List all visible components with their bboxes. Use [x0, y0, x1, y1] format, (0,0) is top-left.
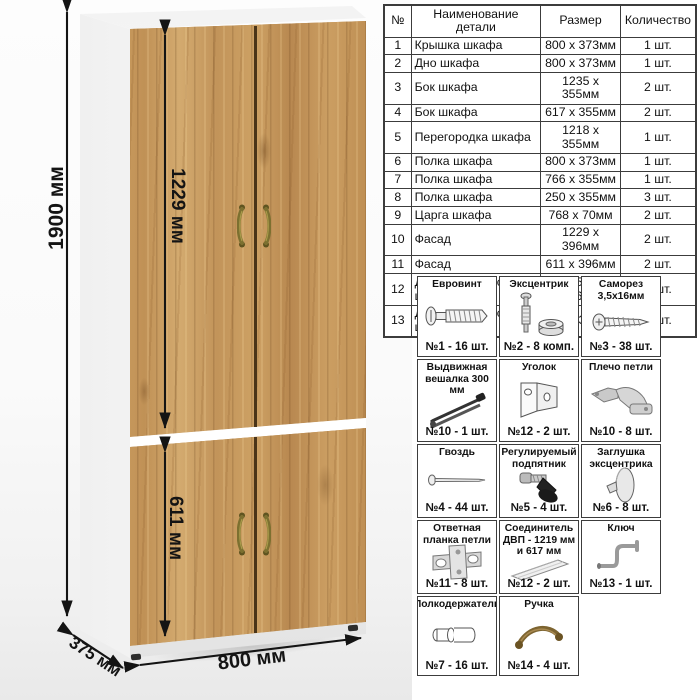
part-qty-cell: 2 шт.	[620, 207, 696, 225]
part-name-cell: Царга шкафа	[411, 207, 541, 225]
part-size-cell: 800 x 373мм	[541, 37, 621, 55]
corner-bracket-icon	[513, 374, 565, 426]
hardware-item: Уголок№12 - 2 шт.	[499, 359, 579, 442]
part-qty-cell: 2 шт.	[620, 224, 696, 256]
part-size-cell: 617 x 355мм	[541, 104, 621, 122]
hardware-item-name: Полкодержатель	[417, 599, 497, 611]
eccentric-cam-icon	[511, 291, 567, 341]
part-qty-cell: 2 шт.	[620, 104, 696, 122]
door-handle-left-icon	[237, 204, 247, 248]
upper-door-dimension-label: 1229 мм	[166, 168, 188, 244]
hardware-item: Ключ№13 - 1 шт.	[581, 520, 661, 594]
hardware-item-name: Уголок	[522, 362, 556, 374]
hardware-item: Регулируемый подпятник№5 - 4 шт.	[499, 444, 579, 518]
part-size-cell: 250 x 355мм	[541, 189, 621, 207]
table-row: 2Дно шкафа800 x 373мм1 шт.	[384, 55, 696, 73]
part-name-cell: Полка шкафа	[411, 171, 541, 189]
part-name-cell: Полка шкафа	[411, 153, 541, 171]
hardware-item: Ответная планка петли№11 - 8 шт.	[417, 520, 497, 594]
table-row: 1Крышка шкафа800 x 373мм1 шт.	[384, 37, 696, 55]
hardware-item: Эксцентрик№2 - 8 комп.	[499, 276, 579, 357]
part-name-cell: Полка шкафа	[411, 189, 541, 207]
cabinet-foot	[131, 654, 141, 661]
part-qty-cell: 1 шт.	[620, 122, 696, 154]
hardware-item-count: №12 - 2 шт.	[508, 426, 571, 438]
part-qty-cell: 1 шт.	[620, 37, 696, 55]
part-size-cell: 1218 x 355мм	[541, 122, 621, 154]
part-name-cell: Дно шкафа	[411, 55, 541, 73]
hardware-item-count: №10 - 8 шт.	[590, 426, 653, 438]
part-number-cell: 6	[384, 153, 411, 171]
hardware-item: Саморез 3,5х16мм№3 - 38 шт.	[581, 276, 661, 357]
part-size-cell: 611 x 396мм	[541, 256, 621, 274]
pullout-hanger-icon	[424, 397, 490, 426]
part-number-cell: 11	[384, 256, 411, 274]
hardware-item-count: №1 - 16 шт.	[426, 341, 489, 353]
hardware-item: Гвоздь№4 - 44 шт.	[417, 444, 497, 518]
handle-icon	[511, 611, 567, 660]
door-handle-right-icon	[261, 512, 271, 556]
part-size-cell: 800 x 373мм	[541, 153, 621, 171]
parts-table-header-row: №Наименование деталиРазмерКоличество	[384, 5, 696, 37]
hardware-item-count: №6 - 8 шт.	[593, 502, 649, 514]
hardware-item-name: Гвоздь	[439, 447, 475, 459]
hardware-item-count: №12 - 2 шт.	[508, 578, 571, 590]
part-name-cell: Фасад	[411, 256, 541, 274]
part-number-cell: 9	[384, 207, 411, 225]
hardware-item: Ручка№14 - 4 шт.	[499, 596, 579, 676]
part-qty-cell: 3 шт.	[620, 189, 696, 207]
part-name-cell: Фасад	[411, 224, 541, 256]
assembly-sheet: 1900 мм 1229 мм 611 мм 800 мм 375 мм №На…	[0, 0, 700, 700]
hardware-item-count: №10 - 1 шт.	[426, 426, 489, 438]
hardware-item: Евровинт№1 - 16 шт.	[417, 276, 497, 357]
part-number-cell: 8	[384, 189, 411, 207]
table-row: 6Полка шкафа800 x 373мм1 шт.	[384, 153, 696, 171]
part-qty-cell: 1 шт.	[620, 153, 696, 171]
hardware-item: Полкодержатель№7 - 16 шт.	[417, 596, 497, 676]
cam-cover-icon	[602, 470, 640, 502]
part-number-cell: 13	[384, 305, 411, 337]
hardware-item: Соединитель ДВП - 1219 мм и 617 мм№12 - …	[499, 520, 579, 594]
part-number-cell: 7	[384, 171, 411, 189]
table-row: 4Бок шкафа617 x 355мм2 шт.	[384, 104, 696, 122]
part-number-cell: 3	[384, 73, 411, 105]
cabinet-foot	[348, 625, 358, 632]
hardware-item: Выдвижная вешалка 300 мм№10 - 1 шт.	[417, 359, 497, 442]
hinge-arm-icon	[588, 374, 654, 426]
part-size-cell: 1229 x 396мм	[541, 224, 621, 256]
hardware-item-count: №5 - 4 шт.	[511, 502, 567, 514]
part-number-cell: 1	[384, 37, 411, 55]
parts-table-header: Количество	[620, 5, 696, 37]
part-qty-cell: 2 шт.	[620, 256, 696, 274]
hardware-item-count: №7 - 16 шт.	[426, 660, 489, 672]
lower-door-dimension-label: 611 мм	[164, 496, 186, 560]
table-row: 9Царга шкафа768 x 70мм2 шт.	[384, 207, 696, 225]
part-name-cell: Перегородка шкафа	[411, 122, 541, 154]
part-size-cell: 766 x 355мм	[541, 171, 621, 189]
door-handle-left-icon	[237, 512, 247, 556]
part-number-cell: 10	[384, 224, 411, 256]
height-dimension-label: 1900 мм	[45, 166, 69, 250]
part-number-cell: 5	[384, 122, 411, 154]
lower-door-gap	[254, 437, 257, 633]
hinge-plate-icon	[427, 546, 487, 578]
part-size-cell: 768 x 70мм	[541, 207, 621, 225]
euro-screw-icon	[425, 291, 489, 341]
table-row: 11Фасад611 x 396мм2 шт.	[384, 256, 696, 274]
table-row: 5Перегородка шкафа1218 x 355мм1 шт.	[384, 122, 696, 154]
hardware-item-count: №2 - 8 комп.	[504, 341, 574, 353]
shelf-pin-icon	[430, 611, 484, 660]
hardware-item-count: №11 - 8 шт.	[426, 578, 488, 590]
table-row: 3Бок шкафа1235 x 355мм2 шт.	[384, 73, 696, 105]
wardrobe	[80, 4, 372, 672]
hardware-item-count: №4 - 44 шт.	[426, 502, 489, 514]
part-size-cell: 1235 x 355мм	[541, 73, 621, 105]
hardware-item-name: Евровинт	[432, 279, 482, 291]
part-name-cell: Бок шкафа	[411, 73, 541, 105]
part-number-cell: 12	[384, 274, 411, 306]
hardware-item-name: Ручка	[524, 599, 553, 611]
key-icon	[593, 535, 649, 578]
part-qty-cell: 1 шт.	[620, 171, 696, 189]
hardware-grid: Евровинт№1 - 16 шт.Эксцентрик№2 - 8 комп…	[417, 276, 661, 676]
part-name-cell: Крышка шкафа	[411, 37, 541, 55]
hardware-item-name: Саморез 3,5х16мм	[583, 279, 659, 302]
hardware-item: Плечо петли№10 - 8 шт.	[581, 359, 661, 442]
hardware-item: Заглушка эксцентрика№6 - 8 шт.	[581, 444, 661, 518]
hardware-item-count: №14 - 4 шт.	[508, 660, 571, 672]
adjustable-foot-icon	[516, 470, 562, 502]
part-number-cell: 2	[384, 55, 411, 73]
table-row: 10Фасад1229 x 396мм2 шт.	[384, 224, 696, 256]
hardware-item-count: №13 - 1 шт.	[590, 578, 653, 590]
part-qty-cell: 1 шт.	[620, 55, 696, 73]
parts-table-header: Наименование детали	[411, 5, 541, 37]
table-row: 7Полка шкафа766 x 355мм1 шт.	[384, 171, 696, 189]
part-name-cell: Бок шкафа	[411, 104, 541, 122]
nail-icon	[427, 459, 487, 502]
part-size-cell: 800 x 373мм	[541, 55, 621, 73]
hardware-item-name: Эксцентрик	[509, 279, 568, 291]
hardware-item-name: Плечо петли	[589, 362, 653, 374]
hdf-connector-icon	[506, 558, 572, 578]
part-qty-cell: 2 шт.	[620, 73, 696, 105]
parts-table-header: №	[384, 5, 411, 37]
upper-door-gap	[254, 26, 257, 427]
part-number-cell: 4	[384, 104, 411, 122]
door-handle-right-icon	[261, 204, 271, 248]
parts-table-header: Размер	[541, 5, 621, 37]
self-tapping-screw-icon	[592, 302, 650, 341]
table-row: 8Полка шкафа250 x 355мм3 шт.	[384, 189, 696, 207]
wardrobe-photo: 1900 мм 1229 мм 611 мм 800 мм 375 мм	[0, 0, 412, 700]
hardware-item-count: №3 - 38 шт.	[590, 341, 653, 353]
hardware-item-name: Ключ	[607, 523, 634, 535]
